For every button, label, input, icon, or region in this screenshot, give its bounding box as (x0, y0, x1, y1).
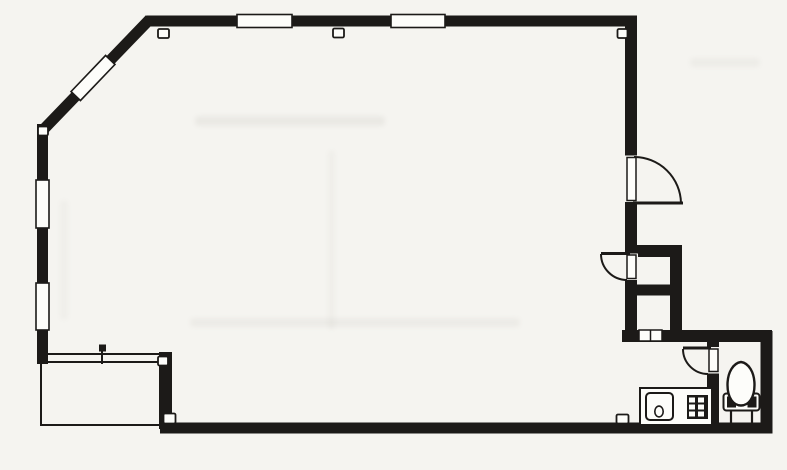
door-jamb-slot (709, 349, 718, 372)
kitchen-counter (640, 388, 712, 425)
column-marker-bottom-mid (617, 415, 629, 424)
floor-plan (0, 0, 787, 470)
scan-smudge (190, 318, 520, 327)
window-left-lower (36, 283, 49, 330)
window-top-right (391, 15, 445, 28)
burner-cell (689, 412, 695, 417)
sink-drain (655, 406, 663, 417)
burner-cell (689, 405, 695, 410)
scan-smudge (328, 150, 335, 330)
door-jamb-slot (627, 158, 636, 201)
scan-smudge (690, 58, 760, 67)
column-marker-balcony-top (158, 357, 168, 366)
door-jamb-slot (627, 255, 636, 279)
burner-cell (698, 405, 704, 410)
column-marker-top-mid (333, 29, 344, 38)
window-left-upper (36, 180, 49, 228)
column-marker-top-right (618, 29, 628, 38)
window-top-left (237, 15, 292, 28)
burner-cell (698, 412, 704, 417)
column-marker-balcony-bottom (164, 414, 176, 424)
closet-hatch (639, 330, 662, 341)
column-marker-top-left (158, 29, 169, 38)
floor-plan-drawing (0, 0, 787, 470)
balcony-tick-dot (99, 345, 106, 352)
burner-cell (698, 398, 704, 403)
burner-cell (689, 398, 695, 403)
scan-smudge (195, 116, 385, 126)
column-marker-corner-left (38, 127, 48, 136)
toilet-bowl (728, 362, 755, 406)
scan-smudge (60, 200, 68, 320)
